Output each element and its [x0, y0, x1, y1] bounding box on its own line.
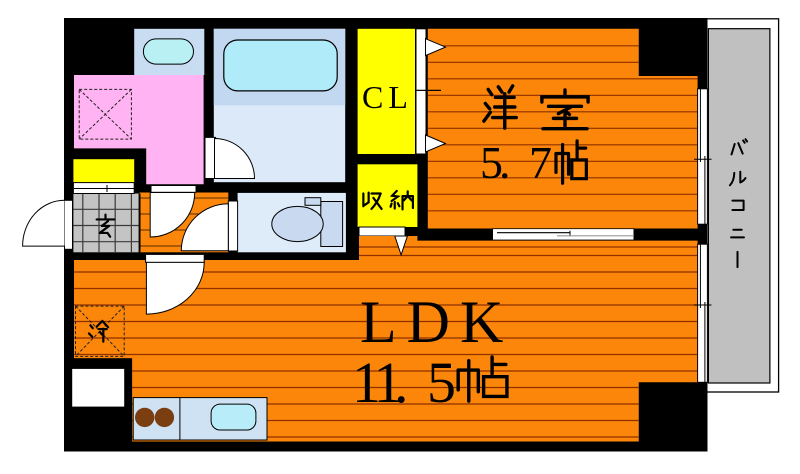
svg-text:CL: CL — [362, 79, 413, 115]
svg-text:11.5: 11.5 — [352, 350, 456, 415]
svg-text:LDK: LDK — [360, 289, 513, 355]
